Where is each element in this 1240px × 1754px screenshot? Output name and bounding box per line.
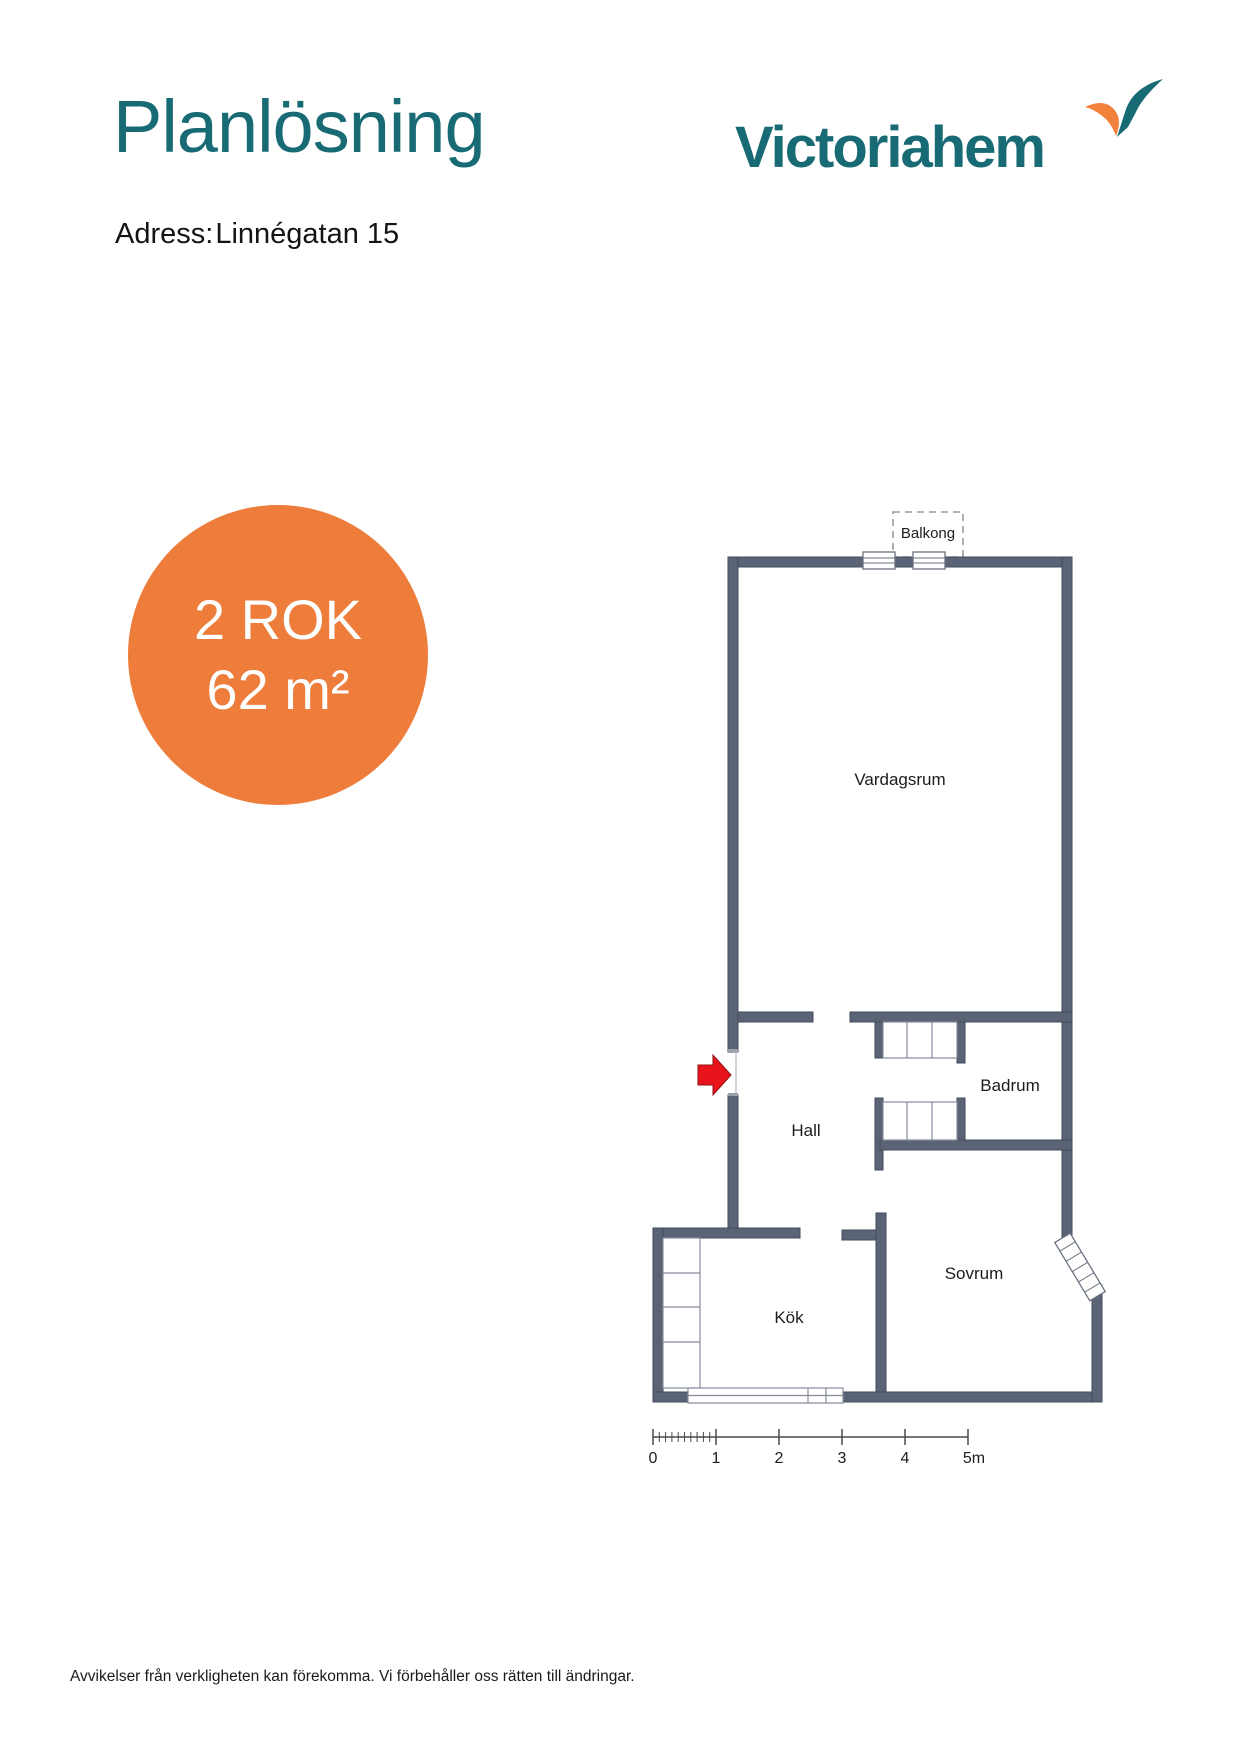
flyer-page: Planlösning Adress:Linnégatan 15 Victori… <box>0 0 1240 1754</box>
kitchen-window <box>688 1388 843 1403</box>
scale-bar <box>653 1429 968 1445</box>
wall-closet-upper-right-stub <box>957 1022 965 1063</box>
wardrobes <box>883 1022 957 1140</box>
room-label-hall: Hall <box>791 1121 820 1140</box>
scale-label-0: 0 <box>649 1450 658 1467</box>
wall-closet-lower-left-stub <box>875 1098 883 1170</box>
walls <box>653 557 1102 1402</box>
kitchen-counter-strip <box>663 1238 700 1388</box>
scale-label-1: 1 <box>712 1450 721 1467</box>
kitchen-counter <box>663 1238 700 1388</box>
scale-label-2: 2 <box>775 1450 784 1467</box>
room-label-vardagsrum: Vardagsrum <box>854 770 945 789</box>
scale-label-5: 5m <box>963 1450 985 1467</box>
room-label-kok: Kök <box>774 1308 804 1327</box>
wall-top <box>728 557 1072 567</box>
wall-closet-lower-right-stub <box>957 1098 965 1140</box>
wall-closet-upper-left-stub <box>875 1022 883 1058</box>
window-2 <box>913 552 945 569</box>
footer-note: Avvikelser från verkligheten kan förekom… <box>70 1668 635 1686</box>
wall-bedroom-right-lower <box>1092 1285 1102 1402</box>
scale-label-4: 4 <box>901 1450 910 1467</box>
wall-kitchen-left <box>653 1228 663 1402</box>
wardrobe-lower <box>883 1102 957 1140</box>
scale-labels: 0 1 2 3 4 5m <box>649 1450 986 1467</box>
window-1 <box>863 552 895 569</box>
wall-kitchen-bedroom-divider <box>876 1213 886 1392</box>
entrance-arrow-icon <box>698 1055 731 1095</box>
wall-right <box>1062 557 1072 1240</box>
wall-livingroom-south-left <box>738 1012 813 1022</box>
wardrobe-upper <box>883 1022 957 1058</box>
wall-bathroom-south <box>880 1140 1072 1150</box>
wall-hall-south <box>653 1228 800 1238</box>
entrance-frame-top <box>728 1049 738 1052</box>
bedroom-angled-window <box>1055 1233 1105 1301</box>
entrance-frame-bottom <box>728 1093 738 1096</box>
room-label-badrum: Badrum <box>980 1076 1040 1095</box>
wall-livingroom-south-right <box>850 1012 1072 1022</box>
wall-left-upper <box>728 557 738 1052</box>
floorplan-svg: Balkong Vardagsrum Badrum Hall Kök Sovru… <box>0 0 1240 1754</box>
room-label-sovrum: Sovrum <box>945 1264 1004 1283</box>
wall-left-lower <box>728 1095 738 1238</box>
room-label-balkong: Balkong <box>901 525 955 542</box>
scale-label-3: 3 <box>838 1450 847 1467</box>
